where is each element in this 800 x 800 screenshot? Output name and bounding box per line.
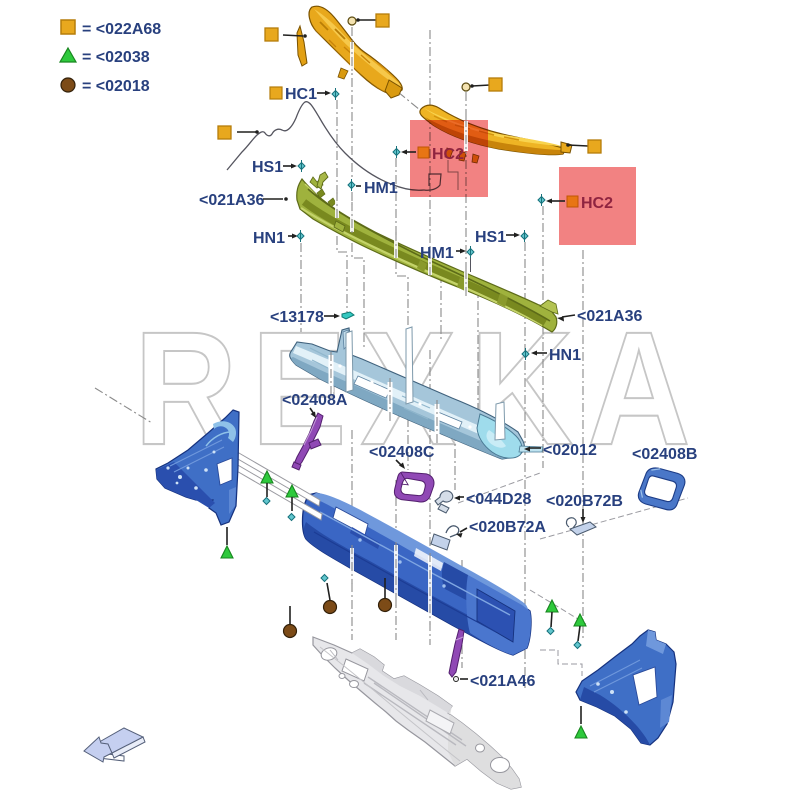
svg-text:HC2: HC2: [581, 195, 613, 212]
svg-text:<021A36: <021A36: [199, 192, 264, 209]
svg-text:= <02018: = <02018: [82, 78, 150, 95]
svg-text:<02012: <02012: [543, 442, 597, 459]
svg-text:<02408C: <02408C: [369, 444, 435, 461]
svg-text:<02408B: <02408B: [632, 446, 697, 463]
svg-text:<13178: <13178: [270, 309, 324, 326]
svg-text:<021A46: <021A46: [470, 673, 535, 690]
svg-text:<021A36: <021A36: [577, 308, 642, 325]
svg-text:<020B72B: <020B72B: [546, 493, 623, 510]
svg-text:<020B72A: <020B72A: [469, 519, 546, 536]
svg-text:HS1: HS1: [252, 159, 283, 176]
svg-text:HN1: HN1: [253, 230, 285, 247]
svg-text:HM1: HM1: [420, 245, 454, 262]
svg-text:= <02038: = <02038: [82, 49, 150, 66]
svg-text:<02408A: <02408A: [282, 392, 348, 409]
svg-text:= <022A68: = <022A68: [82, 21, 161, 38]
svg-text:HM1: HM1: [364, 180, 398, 197]
svg-text:<044D28: <044D28: [466, 491, 531, 508]
svg-text:HN1: HN1: [549, 347, 581, 364]
svg-text:HC2: HC2: [432, 146, 464, 163]
svg-text:HS1: HS1: [475, 229, 506, 246]
svg-text:HC1: HC1: [285, 86, 317, 103]
